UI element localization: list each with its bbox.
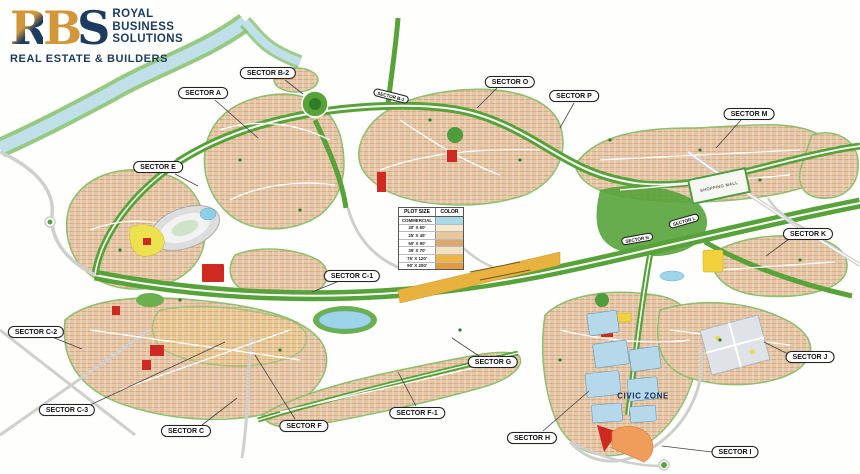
legend-row-75x120: 75' X 120' bbox=[399, 255, 463, 263]
legend-swatch bbox=[436, 217, 463, 224]
shopping-mall-label: SHOPPING MALL bbox=[699, 180, 738, 193]
sector-label-k[interactable]: SECTOR K bbox=[783, 228, 833, 240]
sector-label-e[interactable]: SECTOR E bbox=[133, 161, 183, 173]
legend-swatch bbox=[436, 232, 463, 239]
civic-zone-label: CIVIC ZONE bbox=[617, 392, 669, 401]
rbs-logo-monogram: RBS bbox=[10, 4, 105, 52]
sector-label-a[interactable]: SECTOR A bbox=[178, 87, 228, 99]
legend-row-25x45: 25' X 45' bbox=[399, 232, 463, 240]
legend-row-35x70: 35' X 70' bbox=[399, 247, 463, 255]
yellow-block bbox=[703, 250, 723, 272]
legend-header: PLOT SIZE COLOR bbox=[399, 208, 463, 217]
legend-swatch bbox=[436, 240, 463, 247]
legend-swatch bbox=[436, 247, 463, 254]
sector-label-p[interactable]: SECTOR P bbox=[549, 90, 599, 102]
sector-label-c2[interactable]: SECTOR C-2 bbox=[8, 326, 64, 338]
rbs-logo: RBS ROYAL BUSINESS SOLUTIONS REAL ESTATE… bbox=[10, 4, 183, 65]
pond bbox=[200, 208, 216, 220]
legend-row-90x200: 90' X 200' bbox=[399, 263, 463, 270]
legend-swatch bbox=[436, 255, 463, 262]
sector-label-o[interactable]: SECTOR O bbox=[485, 76, 535, 88]
sector-label-c[interactable]: SECTOR C bbox=[161, 425, 211, 437]
legend-header-color: COLOR bbox=[436, 208, 463, 216]
sector-label-i[interactable]: SECTOR I bbox=[712, 446, 759, 458]
legend-swatch bbox=[436, 263, 463, 270]
sector-label-b2[interactable]: SECTOR B-2 bbox=[240, 67, 296, 79]
sector-label-j[interactable]: SECTOR J bbox=[786, 351, 835, 363]
sector-label-m[interactable]: SECTOR M bbox=[724, 108, 775, 120]
sector-label-c3[interactable]: SECTOR C-3 bbox=[39, 404, 95, 416]
sector-label-h[interactable]: SECTOR H bbox=[507, 432, 557, 444]
sector-label-f[interactable]: SECTOR F bbox=[279, 420, 328, 432]
sector-label-g[interactable]: SECTOR G bbox=[468, 356, 518, 368]
sector-label-c1[interactable]: SECTOR C-1 bbox=[324, 270, 380, 282]
legend-row-commercial: COMMERCIAL bbox=[399, 217, 463, 225]
logo-company-name: ROYAL BUSINESS SOLUTIONS bbox=[112, 8, 183, 46]
plot-size-legend: PLOT SIZE COLOR COMMERCIAL 30' X 60' 25'… bbox=[398, 207, 464, 270]
logo-tagline: REAL ESTATE & BUILDERS bbox=[10, 53, 183, 65]
master-plan-map-page: RBS ROYAL BUSINESS SOLUTIONS REAL ESTATE… bbox=[0, 0, 860, 474]
legend-row-50x90: 50' X 90' bbox=[399, 240, 463, 248]
sector-label-f1[interactable]: SECTOR F-1 bbox=[389, 407, 445, 419]
legend-swatch bbox=[436, 225, 463, 232]
legend-header-plot-size: PLOT SIZE bbox=[399, 208, 436, 216]
legend-row-30x60: 30' X 60' bbox=[399, 225, 463, 233]
lake bbox=[319, 311, 371, 329]
